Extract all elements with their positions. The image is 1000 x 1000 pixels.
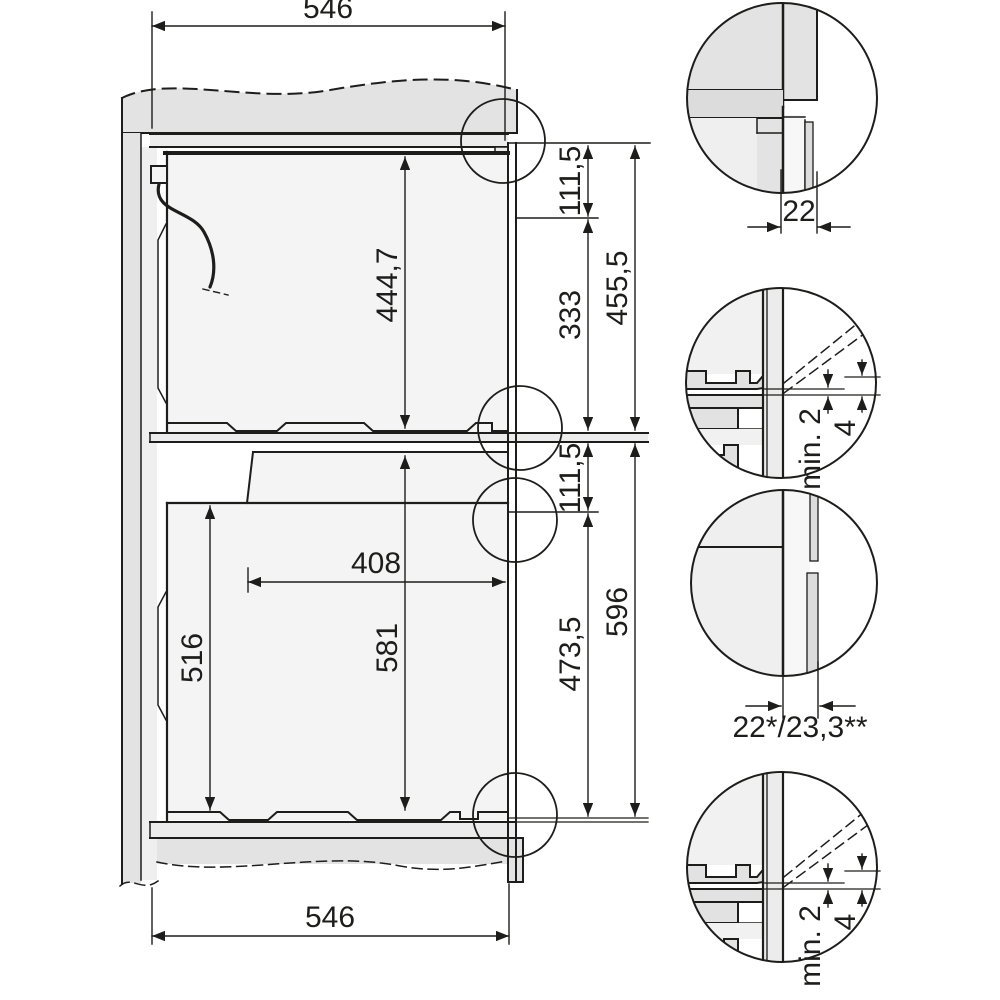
dim-front-thickness-label: 22*/23,3**	[732, 711, 867, 744]
dim-top-width-label: 546	[303, 0, 353, 25]
dim-lower-rear-height-label: 473,5	[554, 616, 587, 691]
terminal-box	[151, 166, 167, 183]
dim-lower-total-height: 596	[601, 444, 635, 816]
dim-lower-total-height-label: 596	[601, 587, 634, 637]
dim-worktop-edge-label: 22	[782, 195, 815, 228]
detail-bottom-junction: min. 2 4	[684, 772, 880, 987]
dim-upper-front-gap-label: 111,5	[554, 146, 587, 217]
appliance-side-profile	[158, 224, 166, 403]
base-cabinet	[157, 838, 508, 864]
dim-bottom-gap-min-label: min. 2	[794, 905, 827, 987]
upper-niche	[151, 152, 508, 433]
detail-top-corner: 22	[685, 2, 877, 233]
dim-upper-total-height-label: 455,5	[601, 250, 634, 325]
main-section-view: 546 444,7 111,5 333 455,5 111,5 473,5	[120, 0, 650, 944]
middle-shelf	[150, 433, 648, 442]
dim-bottom-offset-label: 4	[829, 914, 862, 931]
drawing-svg: 546 444,7 111,5 333 455,5 111,5 473,5	[0, 0, 1000, 1000]
detail-mid-junction: min. 2 4	[684, 286, 880, 490]
dim-upper-rear-height: 333	[554, 220, 588, 430]
dim-mid-gap-min-label: min. 2	[794, 408, 827, 490]
dim-lower-appliance-height-label: 581	[371, 623, 404, 673]
dim-upper-appliance-height-label: 444,7	[371, 247, 404, 322]
worktop	[122, 79, 517, 133]
detail-front-panel: 22*/23,3**	[689, 488, 877, 744]
dim-lower-front-gap-label: 111,5	[554, 443, 587, 514]
dim-upper-front-gap: 111,5	[516, 146, 598, 218]
dim-bottom-width: 546	[152, 884, 509, 944]
dim-lower-rear-height: 473,5	[554, 514, 588, 816]
dim-upper-total-height: 455,5	[601, 146, 635, 430]
installation-drawing: 546 444,7 111,5 333 455,5 111,5 473,5	[0, 0, 1000, 1000]
dim-recess-depth-label: 408	[351, 547, 401, 580]
dim-upper-rear-height-label: 333	[554, 290, 587, 340]
bottom-shelf	[150, 818, 648, 838]
dim-bottom-width-label: 546	[305, 901, 355, 934]
dim-lower-front-height-label: 516	[176, 633, 209, 683]
appliance-side-profile-lower	[158, 592, 166, 720]
dim-mid-offset-label: 4	[829, 420, 862, 437]
side-wall	[122, 133, 141, 883]
